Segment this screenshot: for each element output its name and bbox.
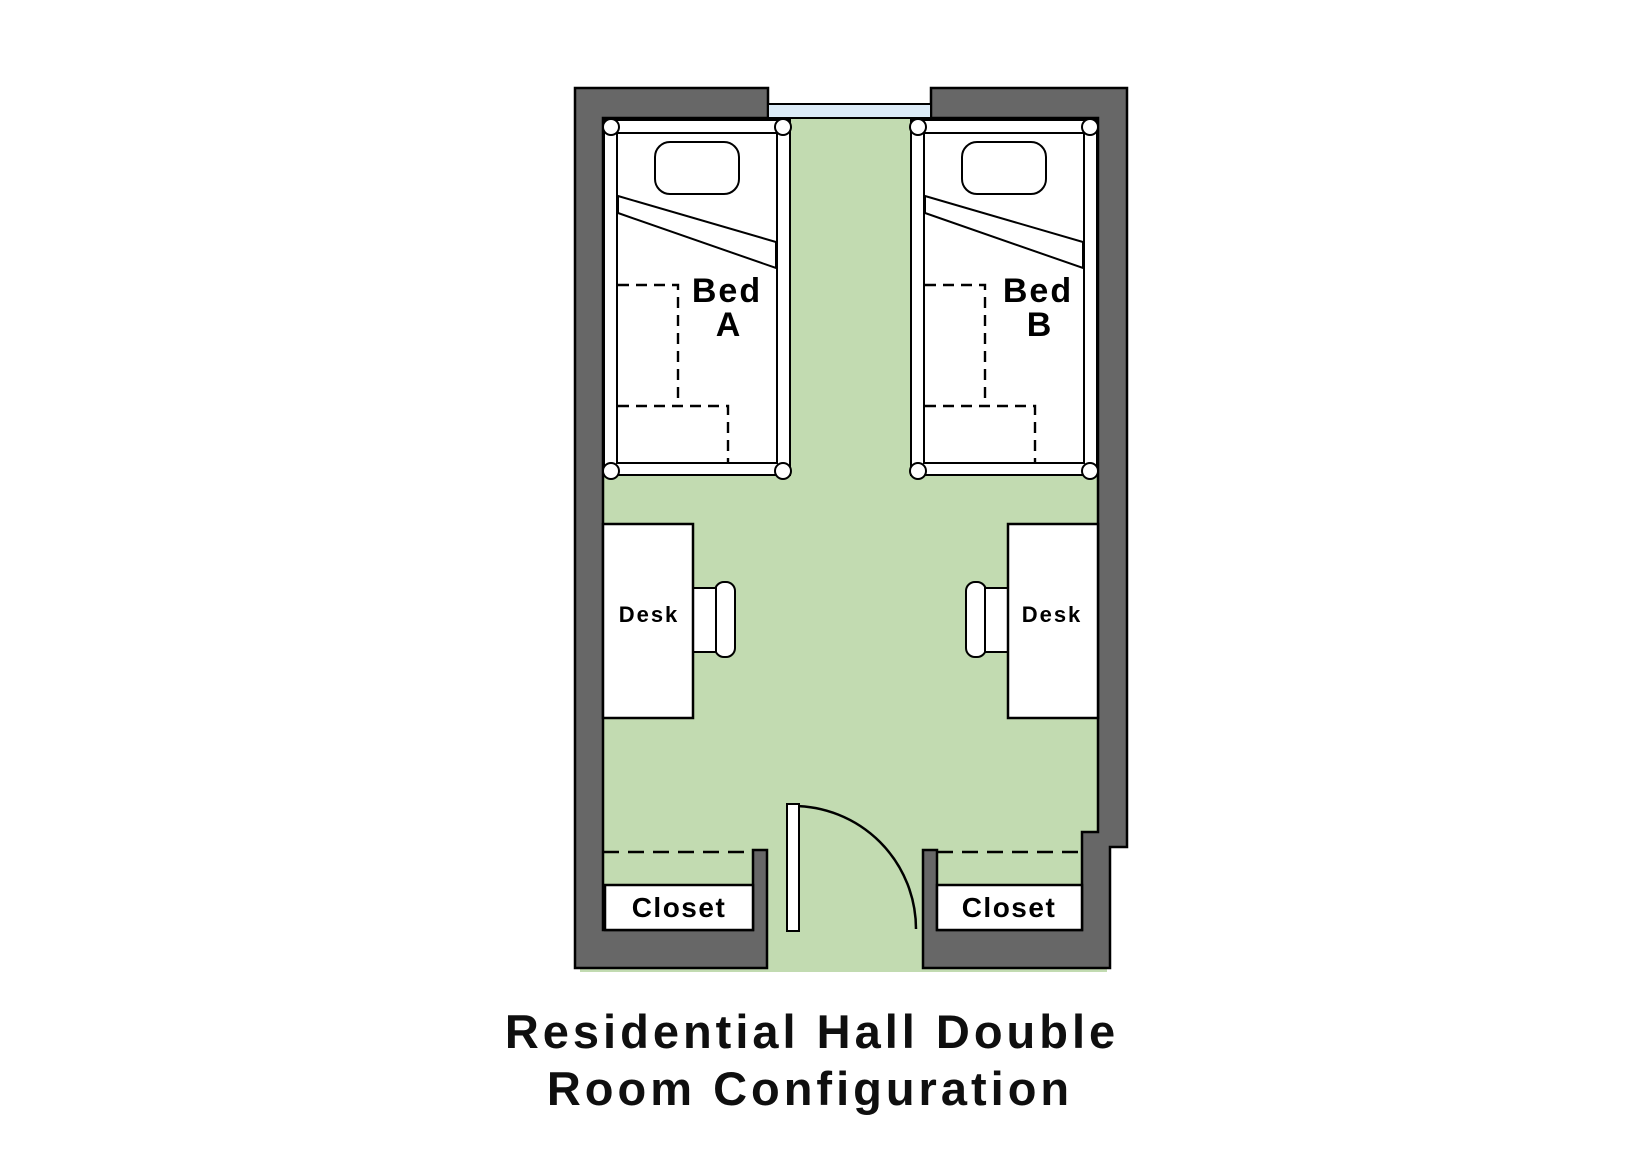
window-glass [768,104,931,118]
chair-b-seat [985,588,1008,652]
bed-a-label-line2: A [716,306,743,344]
diagram-title-line2: Room Configuration [547,1062,1073,1115]
bed-a: Bed A [603,119,791,479]
chair-b-back [966,582,986,657]
bed-b-post-top-right [1082,119,1098,135]
desk-b-label: Desk [1022,602,1083,627]
bed-b-pillow [962,142,1046,194]
closet-left-label: Closet [632,892,727,923]
chair-a-seat [693,588,716,652]
bed-b: Bed B [910,119,1098,479]
bed-a-post-bottom-right [775,463,791,479]
bed-b-post-top-left [910,119,926,135]
bed-b-label-line1: Bed [1003,272,1073,310]
diagram-title: Residential Hall Double Room Configurati… [505,1005,1119,1115]
bed-a-post-bottom-left [603,463,619,479]
bed-a-label-line1: Bed [692,272,762,310]
page-root: Bed A Bed B Desk [0,0,1640,1150]
diagram-title-line1: Residential Hall Double [505,1005,1119,1058]
bed-a-post-top-left [603,119,619,135]
closet-right-label: Closet [962,892,1057,923]
bed-b-post-bottom-left [910,463,926,479]
floorplan-svg: Bed A Bed B Desk [0,0,1640,1150]
chair-a-back [715,582,735,657]
desk-a-label: Desk [619,602,680,627]
bed-b-label-line2: B [1027,306,1054,344]
bed-a-post-top-right [775,119,791,135]
door-leaf [787,804,799,931]
bed-b-post-bottom-right [1082,463,1098,479]
bed-a-pillow [655,142,739,194]
